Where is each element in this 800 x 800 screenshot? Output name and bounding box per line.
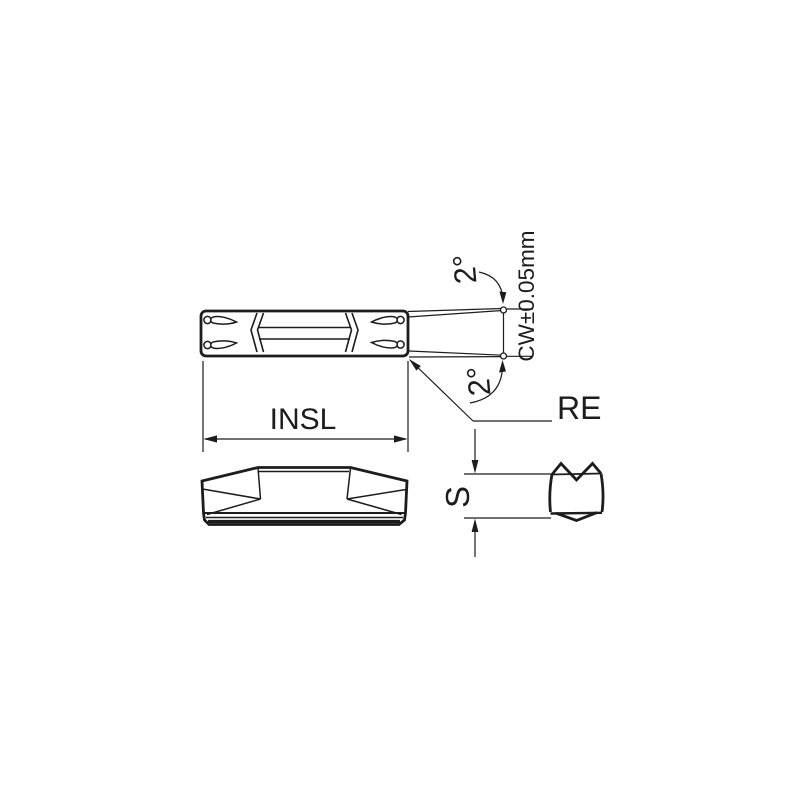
insl-arrow-left — [204, 435, 218, 442]
dimple-drop-left-top — [211, 317, 237, 324]
top-view-outline — [201, 311, 408, 356]
chevron-right-inner — [346, 313, 352, 352]
end-view-top-vee — [552, 464, 601, 481]
s-label: S — [439, 486, 476, 508]
chevron-right-outer — [352, 313, 358, 352]
angle-arrow-top — [499, 292, 506, 305]
angle-arrow-bottom — [499, 360, 506, 373]
front-view — [202, 468, 407, 525]
cw-label: CW±0.05mm — [514, 230, 539, 361]
chevron-left-outer — [251, 313, 257, 352]
angle-bottom-label: 2° — [460, 365, 497, 398]
insl-dimension: INSL — [203, 361, 408, 452]
front-view-outline — [202, 468, 407, 525]
dimple-drop-right-top — [372, 317, 398, 324]
re-label: RE — [557, 390, 601, 426]
insl-arrow-right — [394, 435, 408, 442]
taper-vertex-circle-bottom — [501, 353, 507, 359]
dimple-drop-right-bottom — [372, 340, 398, 347]
front-left-face-upper-diagonal — [203, 489, 261, 499]
s-arrow-top — [472, 460, 479, 474]
angle-top-label: 2° — [446, 253, 483, 286]
end-view-right-edge — [601, 474, 603, 513]
s-arrow-bottom — [472, 519, 479, 533]
end-view-left-edge — [550, 474, 552, 512]
front-right-face-upper-diagonal — [347, 490, 406, 500]
chevron-left-inner — [258, 313, 264, 352]
front-left-face-edge — [258, 468, 261, 499]
dimple-drop-left-bottom — [211, 341, 237, 348]
technical-drawing: 2° 2° CW±0.05mm INSL RE — [0, 0, 800, 800]
end-view-top-edge — [552, 474, 601, 475]
top-view — [201, 311, 408, 356]
front-right-face-edge — [347, 468, 351, 499]
end-view — [550, 464, 603, 521]
s-dimension: S — [439, 429, 551, 557]
taper-line-bottom-upper — [409, 351, 502, 355]
taper-vertex-circle-top — [501, 307, 507, 313]
drawing-canvas: 2° 2° CW±0.05mm INSL RE — [0, 0, 800, 800]
insl-label: INSL — [270, 403, 337, 436]
